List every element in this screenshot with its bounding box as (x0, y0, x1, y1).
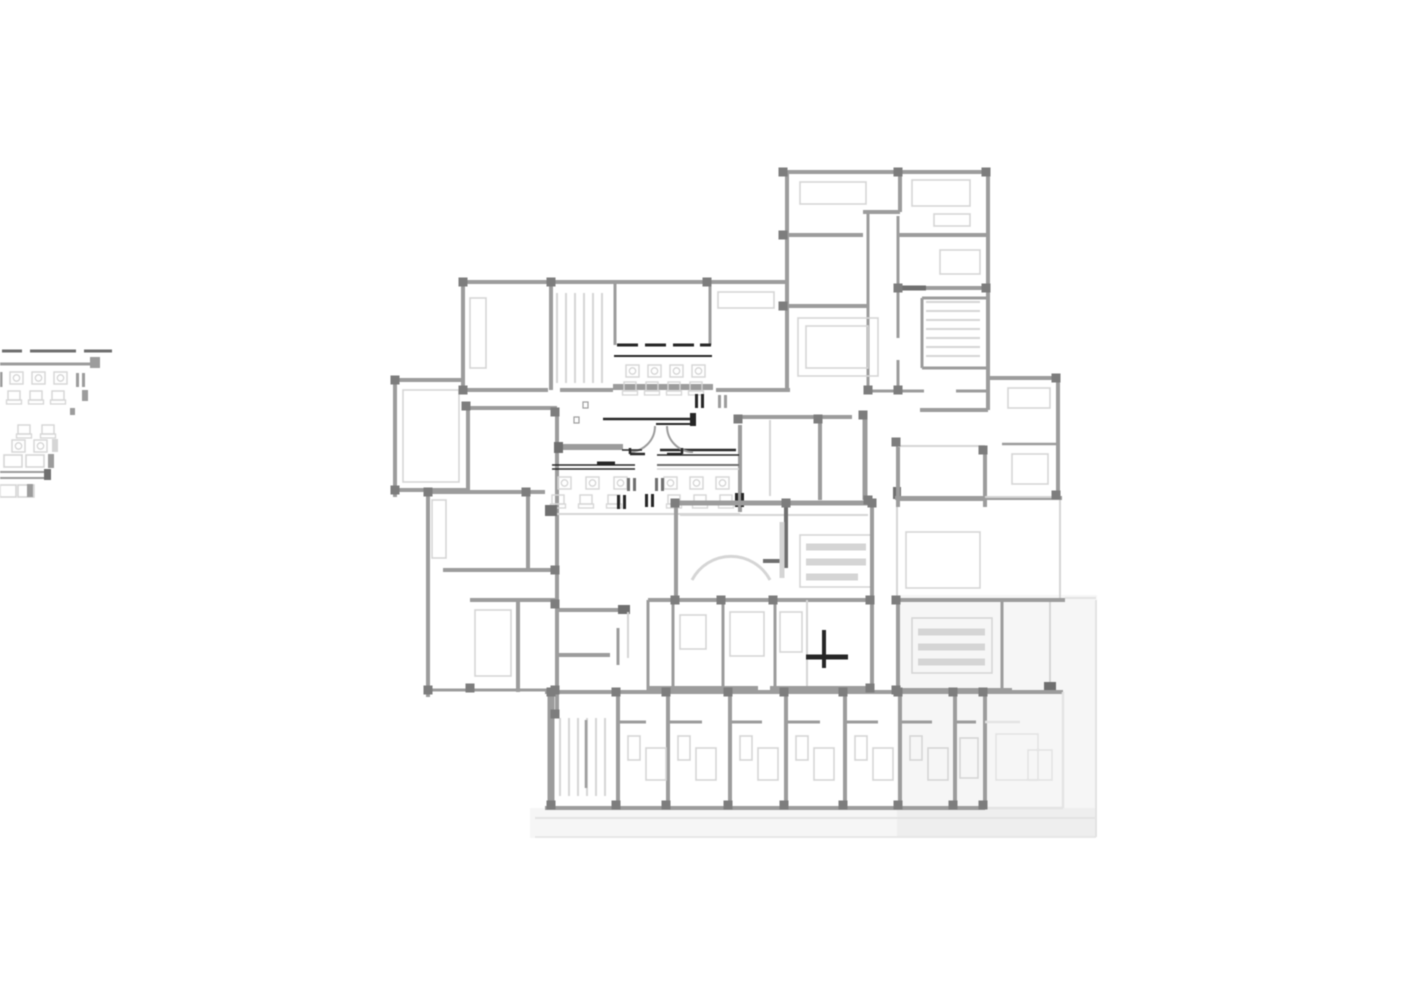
upper-band (463, 282, 790, 423)
right-wing (898, 378, 1058, 507)
drawing-sheet (0, 0, 1414, 1000)
floor-plan-canvas (0, 0, 1414, 1000)
center-block (648, 503, 872, 690)
corridor-walls (557, 352, 988, 514)
wc-core-lower-right (655, 450, 744, 508)
wc-core-upper (613, 345, 727, 408)
left-edge-fragment (0, 351, 112, 497)
left-block (392, 380, 557, 497)
top-right-wing (785, 172, 990, 392)
bottom-room-band (545, 692, 1063, 808)
